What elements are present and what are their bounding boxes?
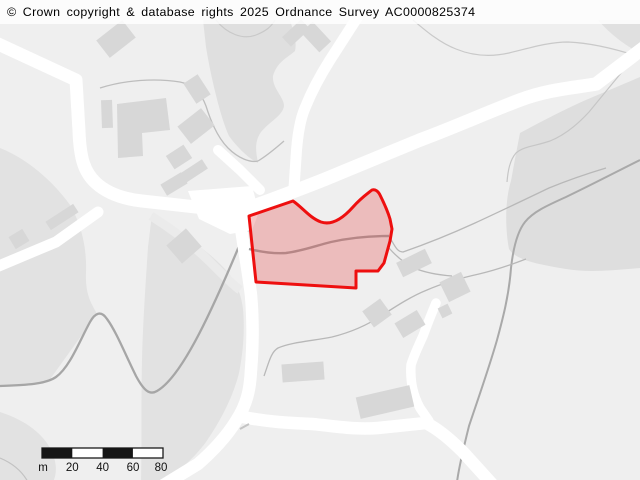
building [183,74,210,103]
scalebar-label-60: 60 [127,462,140,474]
area-top-woodland [203,20,296,163]
area-left-field [0,148,97,387]
map-canvas[interactable]: m20406080 [0,0,640,480]
building [96,20,136,58]
scalebar-label-80: 80 [155,462,168,474]
building [439,272,470,302]
building [396,249,432,277]
building [281,362,324,383]
building [362,298,392,327]
scalebar-label-unit: m [38,462,48,474]
scalebar-seg-3 [103,448,133,458]
building-l-shape [117,98,170,158]
scalebar-label-40: 40 [96,462,109,474]
scalebar-seg-1 [42,448,72,458]
map-viewport[interactable]: m20406080 © Crown copyright & database r… [0,0,640,480]
building [101,100,113,128]
scalebar-label-20: 20 [66,462,79,474]
building [356,385,415,419]
road-bottom-east [243,417,492,480]
wall-fragment [240,424,249,429]
copyright-attribution: © Crown copyright & database rights 2025… [7,5,475,19]
building [166,145,192,170]
area-hillside [506,77,640,271]
